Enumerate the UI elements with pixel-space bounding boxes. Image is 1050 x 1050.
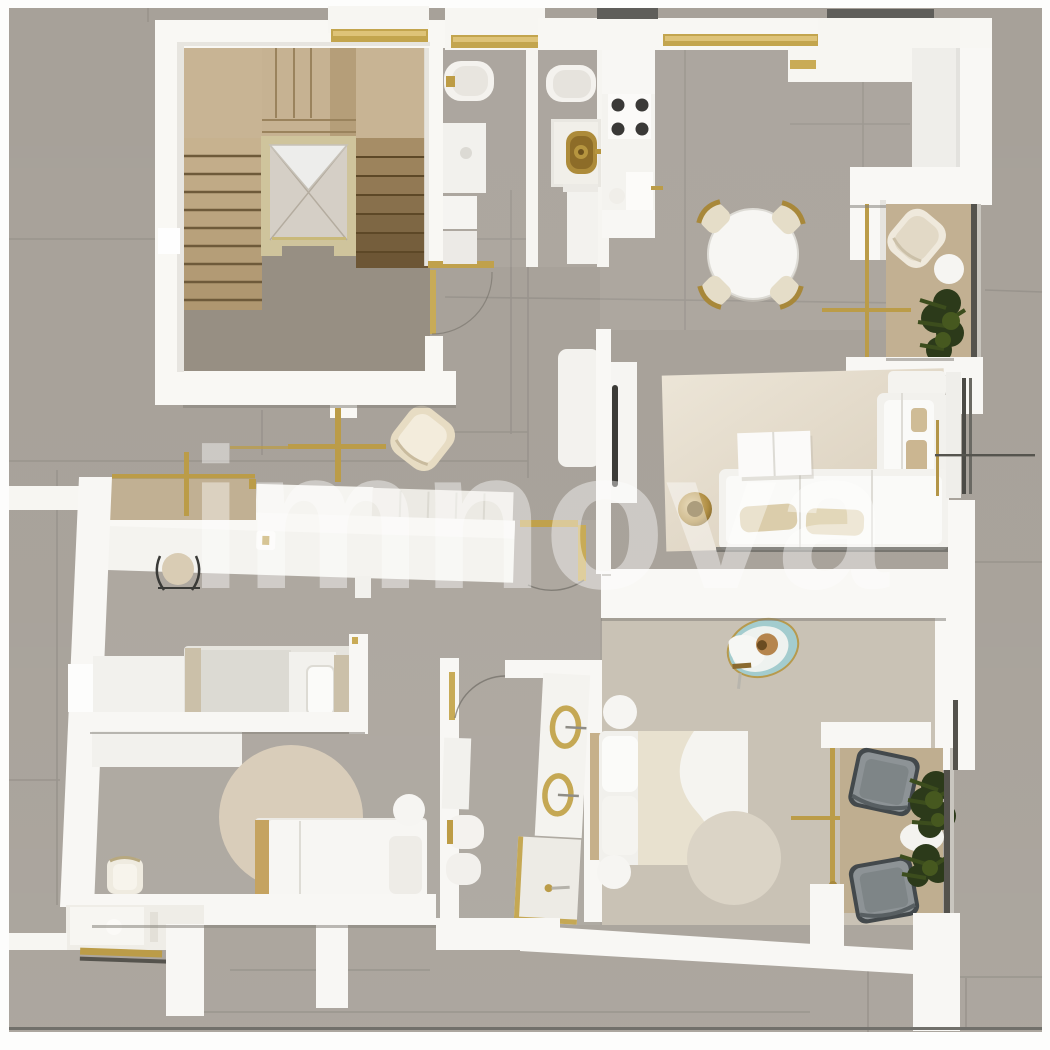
svg-text:imnova: imnova xyxy=(188,408,890,631)
